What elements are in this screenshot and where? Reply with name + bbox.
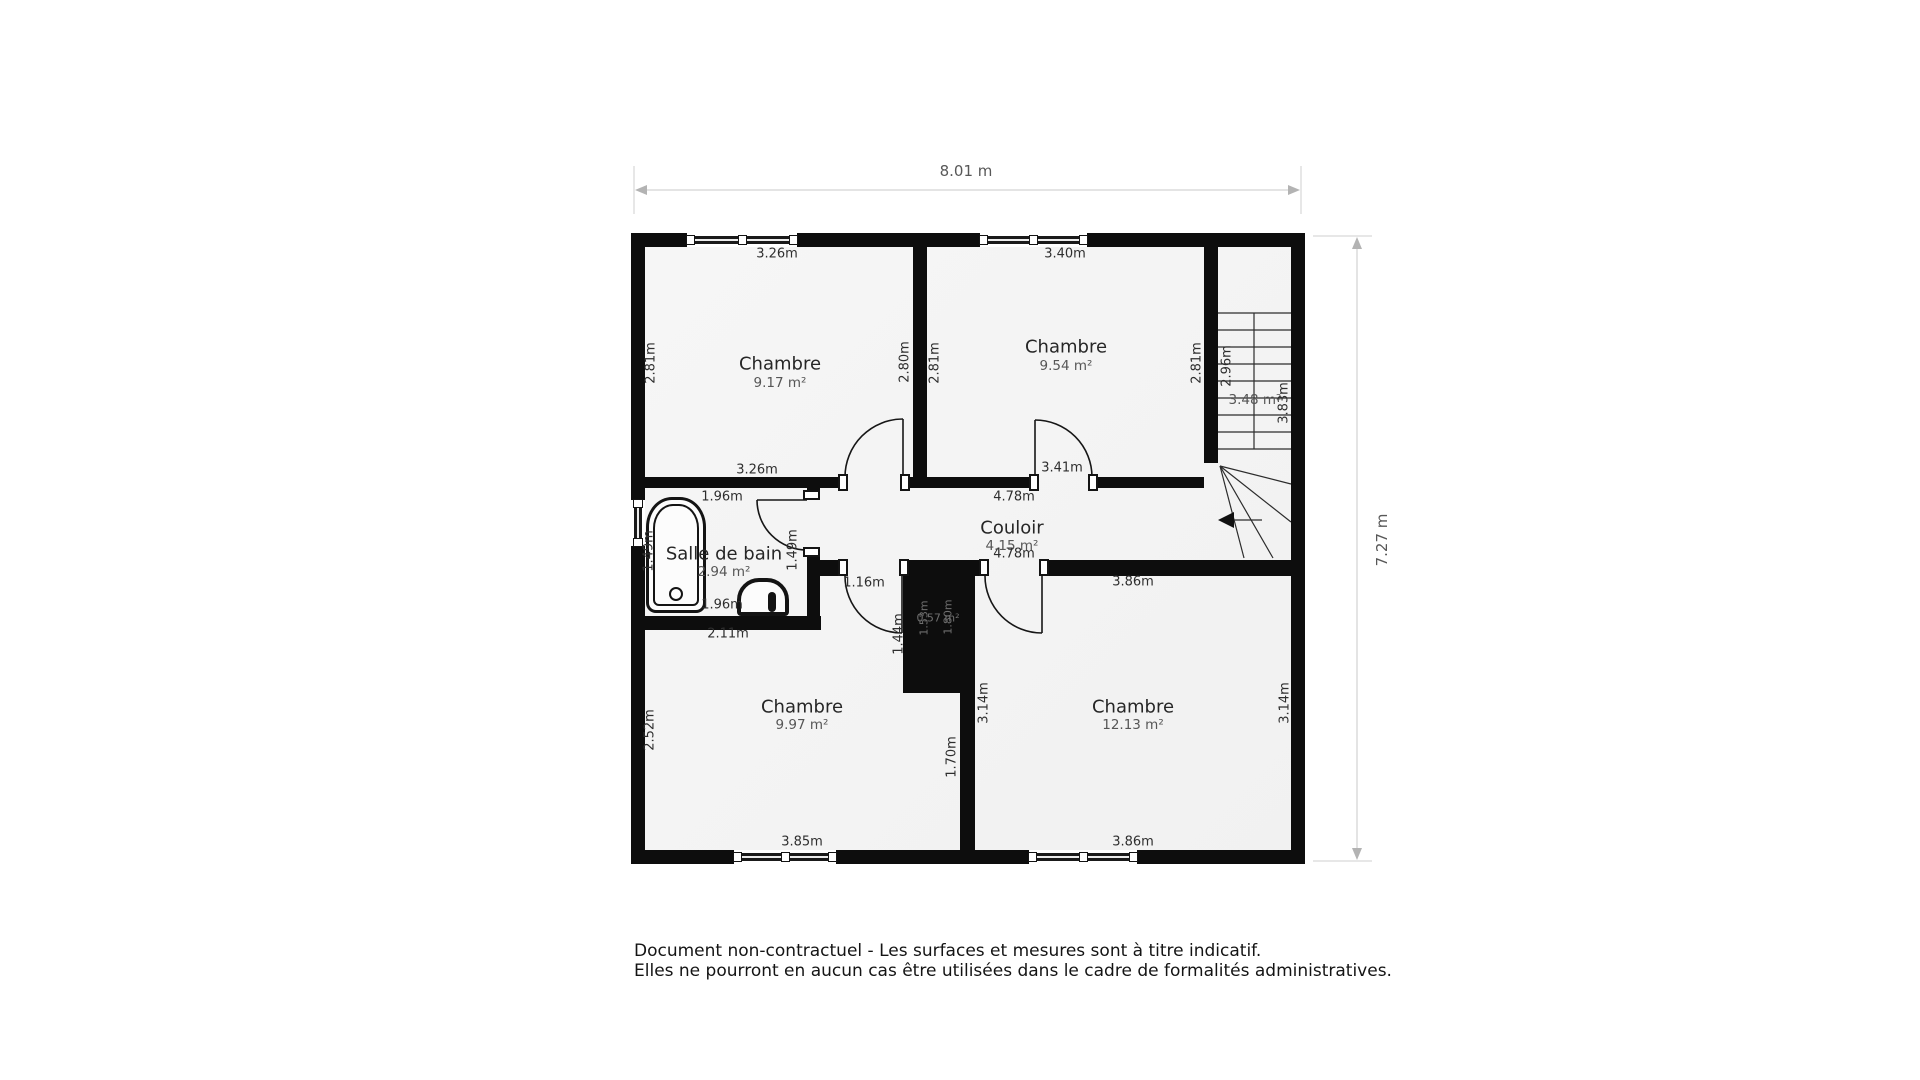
window-cap	[686, 235, 695, 245]
wall-exterior-right	[1291, 233, 1305, 864]
door-jamb	[1088, 474, 1098, 491]
window-cap	[979, 235, 988, 245]
room-label-chambre3: Chambre	[761, 697, 843, 718]
window-chambre2	[980, 233, 1087, 247]
dim-label: 1.70m	[945, 736, 960, 778]
door-jamb	[838, 474, 848, 491]
room-label-salle-de-bain: Salle de bain	[666, 544, 782, 565]
arrow-left-icon	[635, 185, 647, 195]
dim-label: 2.52m	[643, 709, 658, 751]
window-cap	[1028, 852, 1037, 862]
room-label-chambre2: Chambre	[1025, 337, 1107, 358]
bathtub-drain	[669, 587, 683, 601]
arrow-down-icon	[1352, 848, 1362, 860]
overall-height-label: 7.27 m	[1373, 514, 1391, 567]
wall-chambre2-stairs	[1204, 247, 1218, 463]
door-jamb	[803, 547, 820, 557]
dim-label: 2.81m	[928, 342, 943, 384]
window-cap	[738, 235, 747, 245]
dim-label: 3.14m	[977, 682, 992, 724]
door-jamb	[1039, 559, 1049, 576]
window-cap	[1129, 852, 1138, 862]
wall-segment	[1092, 477, 1204, 488]
dim-label-stairs-left: 2.96m	[1220, 345, 1235, 387]
dim-label: 2.80m	[898, 341, 913, 383]
dim-label: 1.49m	[786, 529, 801, 571]
dim-label: 3.26m	[756, 247, 798, 262]
window-cap	[781, 852, 790, 862]
door-jamb	[899, 559, 909, 576]
disclaimer-line-2: Elles ne pourront en aucun cas être util…	[634, 961, 1392, 981]
door-jamb	[1029, 474, 1039, 491]
window-cap	[633, 499, 643, 508]
wall-chambre1-chambre2	[913, 247, 927, 477]
room-area-chambre2: 9.54 m²	[1040, 358, 1093, 374]
window-cap	[789, 235, 798, 245]
toilet	[737, 578, 789, 616]
room-area-chambre4: 12.13 m²	[1102, 717, 1164, 733]
disclaimer: Document non-contractuel - Les surfaces …	[634, 941, 1392, 981]
window-cap	[1079, 852, 1088, 862]
room-label-chambre4: Chambre	[1092, 697, 1174, 718]
door-jamb	[979, 559, 989, 576]
window-cap	[1079, 235, 1088, 245]
toilet-flush	[768, 592, 776, 612]
wall-segment	[1042, 560, 1291, 576]
door-jamb	[900, 474, 910, 491]
wall-segment	[903, 477, 1035, 488]
arrow-up-icon	[1352, 237, 1362, 249]
dim-label: 2.81m	[1190, 342, 1205, 384]
dim-label: 2.11m	[707, 627, 749, 642]
dim-label: 4.78m	[993, 547, 1035, 562]
window-chambre3	[734, 850, 836, 864]
dimension-line-right	[1313, 236, 1372, 861]
dim-label: 3.86m	[1112, 835, 1154, 850]
room-label-chambre1: Chambre	[739, 354, 821, 375]
wall-chambre3-chambre4	[960, 693, 975, 850]
door-jamb	[838, 559, 848, 576]
window-chambre1	[687, 233, 797, 247]
dim-label: 2.81m	[644, 342, 659, 384]
arrow-right-icon	[1288, 185, 1300, 195]
overall-width-label: 8.01 m	[940, 162, 993, 180]
window-cap	[733, 852, 742, 862]
stairs-area-label: 3.48 m²	[1229, 392, 1282, 408]
window-chambre4	[1029, 850, 1137, 864]
room-area-chambre3: 9.97 m²	[776, 717, 829, 733]
dim-label: 1.44m	[892, 613, 907, 655]
dim-label: 3.14m	[1278, 682, 1293, 724]
room-label-couloir: Couloir	[980, 518, 1043, 539]
dim-label: 4.78m	[993, 490, 1035, 505]
dim-label-stairs-right: 3.83m	[1277, 382, 1292, 424]
dim-label: 1.16m	[843, 576, 885, 591]
duct-block	[903, 562, 975, 693]
window-cap	[1029, 235, 1038, 245]
dim-label: 3.26m	[736, 463, 778, 478]
floor-plan-page: 8.01 m 7.27 m Chambre 9.17 m² 3.26m 2.81…	[0, 0, 1920, 1080]
door-jamb	[803, 490, 820, 500]
window-cap	[828, 852, 837, 862]
room-area-chambre1: 9.17 m²	[754, 375, 807, 391]
dim-label: 3.86m	[1112, 575, 1154, 590]
dim-label: 3.85m	[781, 835, 823, 850]
room-area-salle-de-bain: 2.94 m²	[698, 564, 751, 580]
dim-label: 1.96m	[701, 490, 743, 505]
dim-label: 1.49m	[642, 530, 657, 572]
dim-label: 3.41m	[1041, 461, 1083, 476]
duct-dim-label: 1.53m	[918, 600, 931, 635]
duct-dim-label: 1.80m	[942, 599, 955, 634]
disclaimer-line-1: Document non-contractuel - Les surfaces …	[634, 941, 1392, 961]
dim-label: 1.96m	[701, 598, 743, 613]
dim-label: 3.40m	[1044, 247, 1086, 262]
